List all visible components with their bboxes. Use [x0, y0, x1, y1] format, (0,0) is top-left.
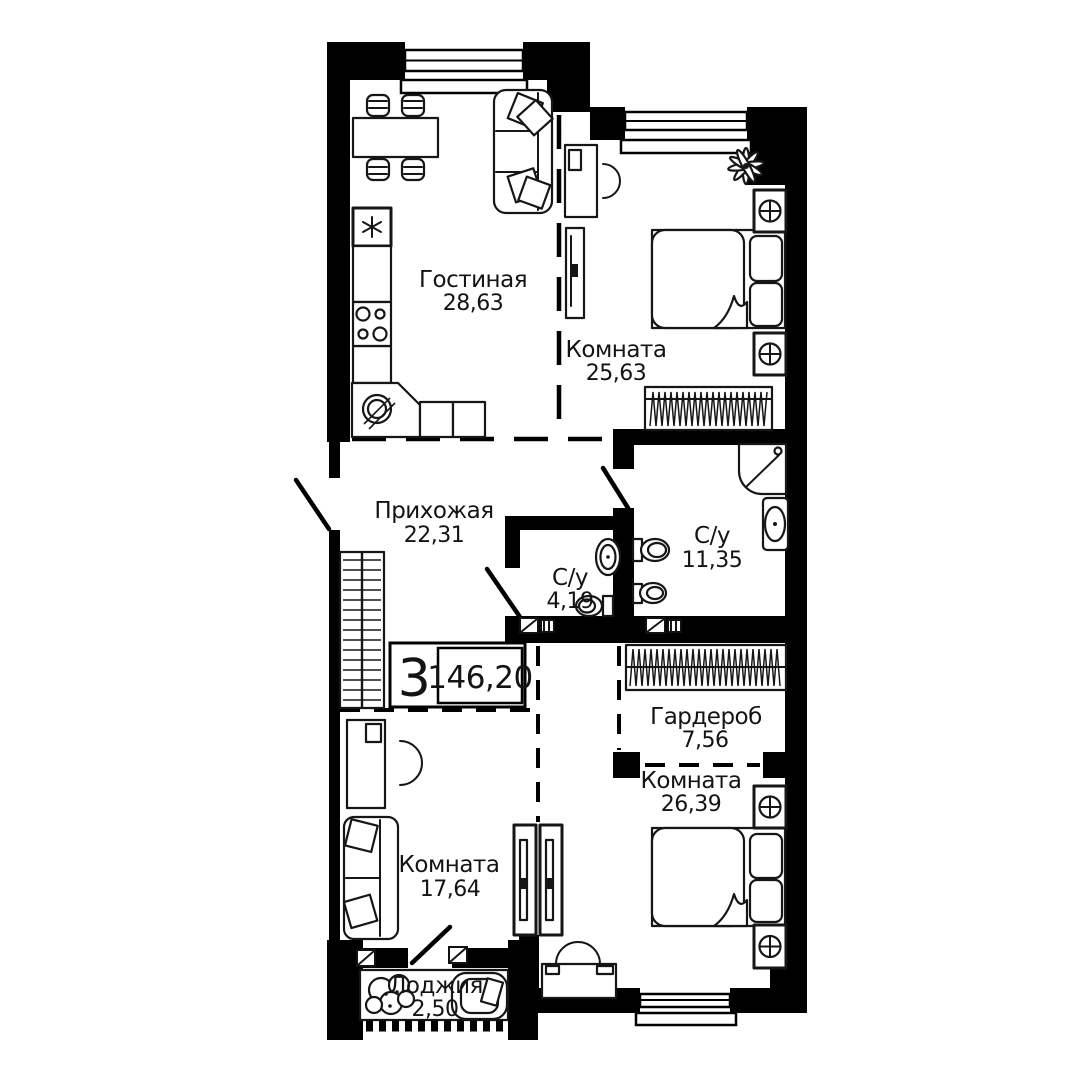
room-name: Гардероб [650, 704, 762, 730]
room-label-living: Гостиная 28,63 [419, 267, 527, 316]
living-room-furniture [352, 90, 553, 437]
sofa-icon [494, 90, 553, 213]
room-name: Гостиная [419, 267, 527, 293]
vent-unit-icon [754, 190, 786, 232]
cooktop-icon [353, 302, 391, 346]
room-area: 25,63 [586, 361, 646, 386]
room-area: 7,56 [682, 728, 729, 753]
room-name: Комната [566, 337, 667, 363]
room-area: 11,35 [682, 548, 742, 573]
room-label-hallway: Прихожая 22,31 [374, 498, 493, 548]
bidet-icon [633, 583, 666, 603]
room-area: 22,31 [404, 523, 464, 548]
window-bedroom-bottom [636, 988, 736, 1025]
room-label-room-left: Комната 17,64 [399, 852, 500, 902]
hallway-furniture [340, 552, 384, 708]
window-bedroom-top [621, 107, 751, 153]
dining-table-icon [353, 95, 438, 180]
apartment-floorplan: Гостиная 28,63 Комната 25,63 Прихожая 22… [0, 0, 1080, 1080]
floorplan-canvas: Гостиная 28,63 Комната 25,63 Прихожая 22… [0, 0, 1080, 1080]
vent-unit-icon [754, 786, 786, 828]
badge-room-count: 3 [398, 649, 431, 709]
shower-icon [739, 444, 786, 494]
room-name: Прихожая [374, 498, 493, 524]
room-area: 26,39 [661, 792, 721, 817]
fridge-icon [353, 208, 391, 246]
room-name: Комната [641, 768, 742, 794]
desk-chair-icon [556, 942, 600, 964]
room-left-furniture [344, 720, 562, 939]
total-area-badge: 3 146,20 [390, 643, 533, 709]
room-label-bedroom-top: Комната 25,63 [566, 337, 667, 386]
radiator-icon [645, 387, 772, 430]
kitchen-sink-icon [352, 383, 485, 437]
garderob-furniture [626, 645, 786, 690]
bedroom-top-furniture [565, 145, 786, 430]
room-label-bedroom-bottom: Комната 26,39 [641, 768, 742, 817]
badge-total-area: 146,20 [427, 660, 532, 696]
vent-unit-icon [754, 333, 786, 375]
washbasin-icon [763, 498, 788, 550]
bed-icon [652, 230, 785, 328]
vent-unit-icon [754, 925, 786, 968]
room-name: Комната [399, 852, 500, 878]
desk-icon [542, 942, 616, 998]
bathroom-small-door-swing [487, 569, 520, 617]
room-label-bathroom-large: С/у 11,35 [682, 523, 742, 573]
toilet-icon [633, 539, 669, 561]
bed-icon [652, 828, 785, 926]
bedroom-bottom-furniture [542, 786, 786, 998]
shelf-icon [566, 228, 584, 318]
room-name: С/у [694, 523, 730, 549]
entrance-door-swing [296, 480, 329, 529]
desk-icon [565, 145, 620, 217]
desk-chair-icon [603, 164, 620, 198]
bathroom-large-door-swing [603, 468, 628, 508]
room-label-garderob: Гардероб 7,56 [650, 704, 762, 753]
room-area: 2,50 [412, 997, 459, 1022]
room-area: 4,19 [547, 589, 594, 614]
wardrobe-rail-icon [626, 645, 786, 690]
window-living [401, 42, 527, 93]
room-label-bathroom-small: С/у 4,19 [547, 565, 594, 614]
loggia-door-swing [412, 927, 450, 963]
wardrobe-rail-icon [340, 552, 384, 708]
room-area: 28,63 [443, 291, 503, 316]
washbasin-icon [596, 539, 620, 575]
sliding-door-icon [514, 825, 562, 935]
room-area: 17,64 [420, 877, 480, 902]
sofa-icon [344, 817, 398, 939]
room-name: С/у [552, 565, 588, 591]
desk-chair-icon [400, 741, 422, 785]
room-name: Лоджия [389, 973, 483, 999]
desk-icon [347, 720, 422, 808]
